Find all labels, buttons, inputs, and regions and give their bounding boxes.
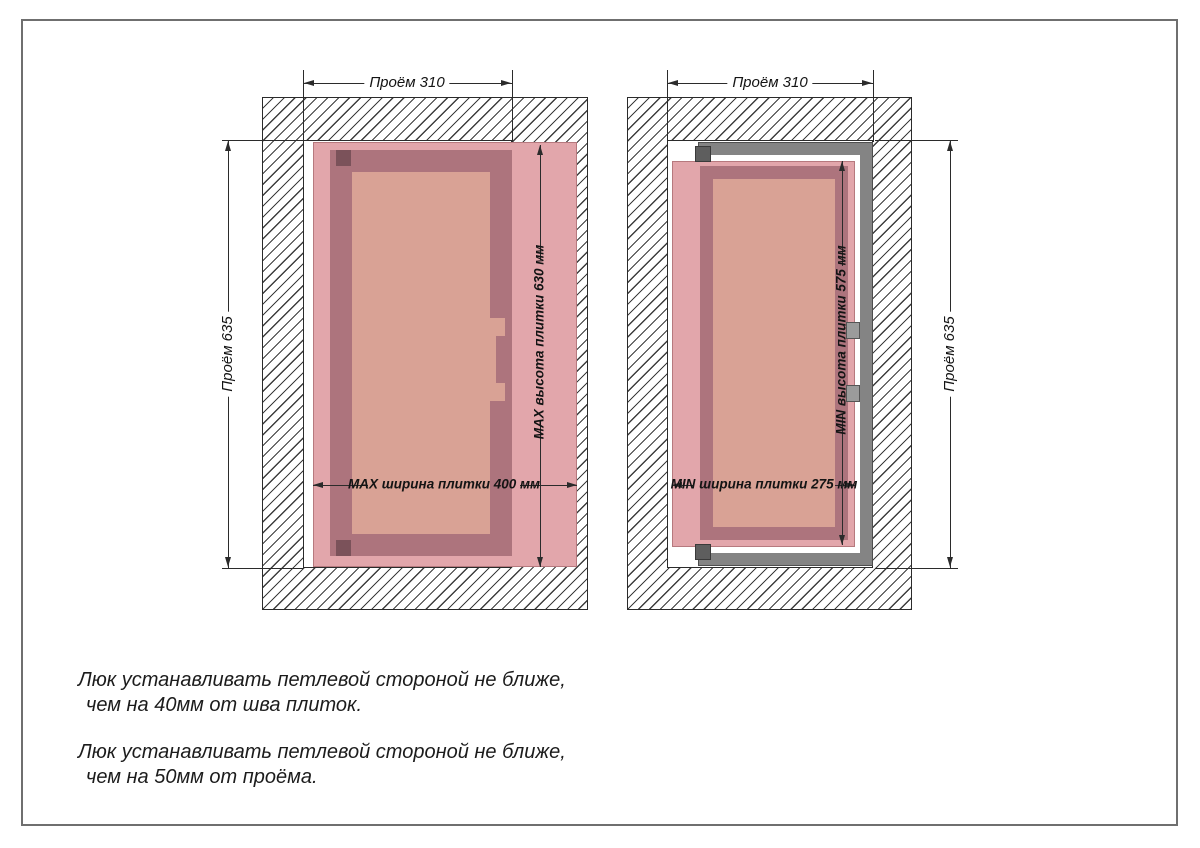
extension-line	[512, 70, 513, 142]
dim-label: MAX ширина плитки 400 мм	[348, 478, 540, 493]
extension-line	[222, 140, 303, 141]
note-2-line-2: чем на 50мм от проёма.	[86, 766, 318, 789]
dimension-line	[540, 424, 541, 567]
extension-line	[222, 568, 303, 569]
drawing-page: Проём 310 Проём 635 MAX ширина плитки 40…	[0, 0, 1200, 848]
latch-bottom-icon	[489, 383, 505, 401]
extension-line	[873, 70, 874, 142]
extension-line	[875, 140, 958, 141]
hinge-bottom-icon	[336, 540, 351, 556]
dim-label: MIN высота плитки 575 мм	[835, 245, 850, 434]
dim-label: Проём 635	[942, 311, 959, 396]
arrow-right-icon	[862, 80, 872, 86]
hatch-door	[713, 179, 835, 527]
dimension-line	[540, 145, 541, 260]
arrow-down-icon	[537, 557, 543, 567]
arrow-left-icon	[313, 482, 323, 488]
arrow-up-icon	[839, 161, 845, 171]
arrow-right-icon	[567, 482, 577, 488]
arrow-up-icon	[947, 141, 953, 151]
dim-label: Проём 635	[220, 311, 237, 396]
dim-label: MAX высота плитки 630 мм	[533, 245, 548, 439]
arrow-left-icon	[668, 80, 678, 86]
note-2-line-1: Люк устанавливать петлевой стороной не б…	[78, 741, 566, 764]
note-1-line-2: чем на 40мм от шва плиток.	[86, 694, 362, 717]
arrow-down-icon	[947, 557, 953, 567]
arrow-down-icon	[839, 535, 845, 545]
arrow-right-icon	[501, 80, 511, 86]
dim-label: Проём 310	[364, 75, 449, 92]
arrow-left-icon	[304, 80, 314, 86]
hinge-bottom-icon	[695, 544, 711, 560]
hinge-top-icon	[695, 146, 711, 162]
dim-label: Проём 310	[727, 75, 812, 92]
extension-line	[875, 568, 958, 569]
arrow-up-icon	[537, 145, 543, 155]
arrow-up-icon	[225, 141, 231, 151]
latch-bar	[489, 336, 496, 383]
latch-top-icon	[489, 318, 505, 336]
note-1-line-1: Люк устанавливать петлевой стороной не б…	[78, 669, 566, 692]
dim-label: MIN ширина плитки 275 мм	[671, 478, 858, 493]
arrow-down-icon	[225, 557, 231, 567]
hinge-top-icon	[336, 150, 351, 166]
